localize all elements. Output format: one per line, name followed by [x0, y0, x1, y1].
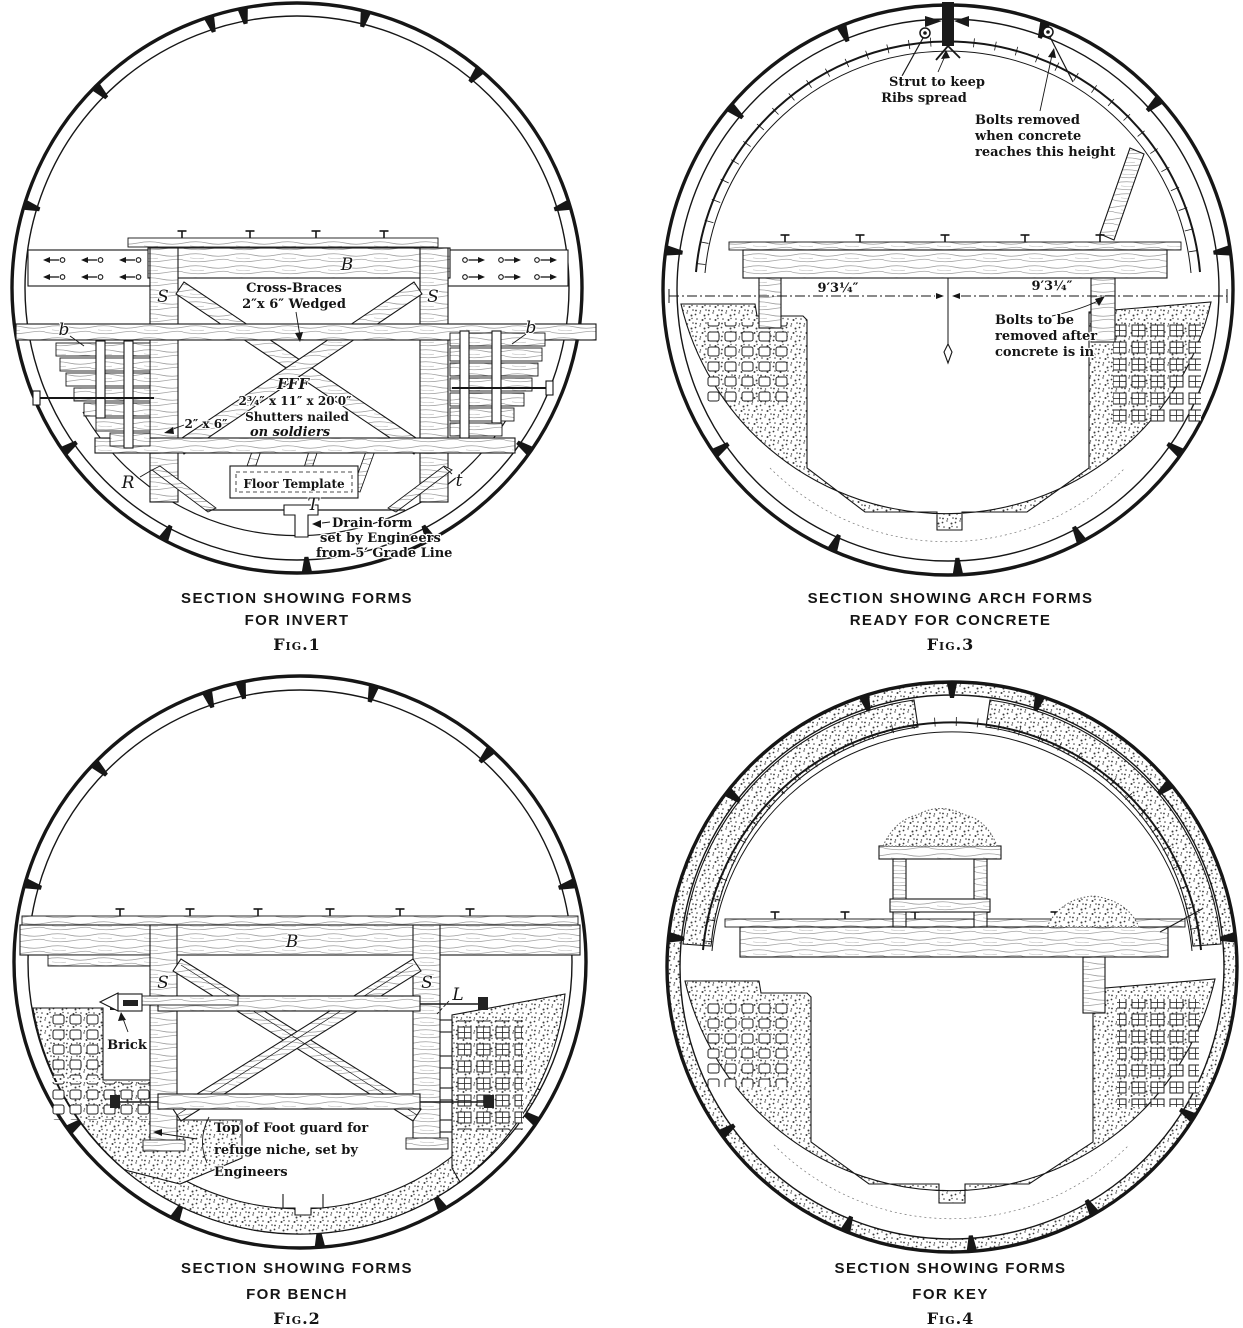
fig3-caption: SECTION SHOWING ARCH FORMS READY FOR CON… — [658, 588, 1243, 654]
engraving-plate: B S S b b Cross-Braces 2″x 6″ Wedged FFF… — [0, 0, 1243, 1328]
fig3-brick-cluster-right — [1113, 322, 1201, 424]
fig4-key-concrete-mound — [883, 809, 997, 847]
fig4-drawing — [655, 672, 1243, 1255]
fig1-label-fff-dims: 2¾″ x 11″ x 20′0″ — [239, 394, 353, 408]
fig1-label-B: B — [340, 255, 354, 275]
fig2-label-footguard-2: refuge niche, set by — [214, 1143, 358, 1158]
fig3-label-bolts-removed-2: when concrete — [974, 129, 1081, 144]
fig1-label-cross-braces-2: 2″x 6″ Wedged — [242, 297, 346, 312]
fig1-label-T: T — [307, 495, 320, 515]
fig1-label-R: R — [121, 473, 135, 493]
fig3-arch-lagging — [696, 37, 1200, 273]
fig2-label-brick: Brick — [107, 1038, 148, 1053]
fig1-label-shutters-1: Shutters nailed — [245, 410, 349, 424]
fig3-label-strut-2: Ribs spread — [881, 91, 967, 106]
fig1-label-S-left: S — [157, 287, 169, 307]
fig2-drawing: B S S L Brick Top of Foot guard for refu… — [0, 668, 620, 1255]
fig4-caption-line2: FOR KEY — [658, 1284, 1243, 1306]
fig3-eye-bolt-right — [1043, 27, 1073, 82]
fig1-caption-line1: SECTION SHOWING FORMS — [8, 588, 586, 610]
fig1-left-extension-beam — [28, 250, 150, 286]
fig3-label-bolts-after-3: concrete is in — [995, 345, 1095, 360]
fig1-right-extension-beam — [448, 250, 568, 286]
fig1-label-drain-1: Drain form — [332, 516, 413, 531]
fig3-leaning-plank — [1100, 148, 1144, 240]
fig3-label-bolts-after-2: removed after — [995, 329, 1097, 344]
fig3-brick-cluster-left — [703, 322, 788, 404]
fig2-label-L: L — [451, 985, 463, 1005]
fig1-label-stud-size: 2″ x 6″ — [185, 417, 229, 431]
fig3-label-strut-1: Strut to keep — [889, 75, 985, 90]
fig1-label-S-right: S — [427, 287, 439, 307]
fig4-concrete-heap-right — [1047, 896, 1139, 927]
fig1-label-t: t — [456, 471, 463, 491]
fig1-caption-line2: FOR INVERT — [8, 610, 586, 632]
fig1-label-drain-2: set by Engineers — [320, 531, 441, 546]
fig1-drawing: B S S b b Cross-Braces 2″x 6″ Wedged FFF… — [0, 0, 620, 585]
fig3-caption-line2: READY FOR CONCRETE — [658, 610, 1243, 632]
fig2-caption-line1: SECTION SHOWING FORMS — [8, 1258, 586, 1280]
fig2-label-footguard-1: Top of Foot guard for — [214, 1121, 368, 1136]
fig3-figure-number: Fig.3 — [658, 635, 1243, 654]
fig3-plumb-bob — [944, 278, 952, 363]
fig2-brick-stack-left-lower — [52, 1082, 162, 1120]
fig1-top-plank — [128, 231, 438, 247]
fig2-label-footguard-3: Engineers — [214, 1165, 288, 1180]
fig2-label-S-right: S — [421, 973, 433, 993]
fig3-label-bolts-removed-3: reaches this height — [975, 145, 1115, 160]
fig1-label-drain-3: from 5′ Grade Line — [316, 546, 452, 561]
fig2-figure-number: Fig.2 — [8, 1309, 586, 1328]
fig4-caption: SECTION SHOWING FORMS FOR KEY Fig.4 — [658, 1258, 1243, 1328]
fig3-dim-right: 9′3¼″ — [1032, 279, 1073, 294]
fig4-brick-cluster-right — [1117, 999, 1199, 1107]
fig1-caption: SECTION SHOWING FORMS FOR INVERT Fig.1 — [8, 588, 586, 654]
fig2-label-B: B — [285, 932, 299, 952]
fig3-label-bolts-after-1: Bolts to be — [995, 313, 1074, 328]
fig2-caption: SECTION SHOWING FORMS FOR BENCH Fig.2 — [8, 1258, 586, 1328]
fig1-label-b-right: b — [526, 318, 537, 338]
fig4-key-form-tower — [879, 809, 1001, 928]
fig1-label-b-left: b — [59, 320, 70, 340]
fig4-caption-line1: SECTION SHOWING FORMS — [658, 1258, 1243, 1280]
fig2-brick-stack-right — [455, 1020, 523, 1130]
fig2-caption-line2: FOR BENCH — [8, 1284, 586, 1306]
fig1-label-shutters-2: on soldiers — [250, 425, 331, 440]
fig1-figure-number: Fig.1 — [8, 635, 586, 654]
fig3-drawing: Strut to keep Ribs spread Bolts removed … — [655, 0, 1243, 585]
fig1-label-cross-braces-1: Cross-Braces — [246, 281, 342, 296]
fig3-label-bolts-removed-1: Bolts removed — [975, 113, 1080, 128]
fig2-label-S-left: S — [157, 973, 169, 993]
fig2-brick-stack-left-upper — [52, 1014, 102, 1078]
fig4-lining-concrete-ring — [667, 682, 1237, 1252]
fig1-right-shutters — [450, 331, 553, 438]
fig4-brick-cluster-left — [707, 999, 792, 1087]
fig3-dim-left: 9′3¼″ — [818, 281, 859, 296]
fig4-figure-number: Fig.4 — [658, 1309, 1243, 1328]
fig1-label-floor-template: Floor Template — [243, 477, 345, 491]
fig1-label-fff: FFF — [276, 375, 310, 393]
fig3-caption-line1: SECTION SHOWING ARCH FORMS — [658, 588, 1243, 610]
